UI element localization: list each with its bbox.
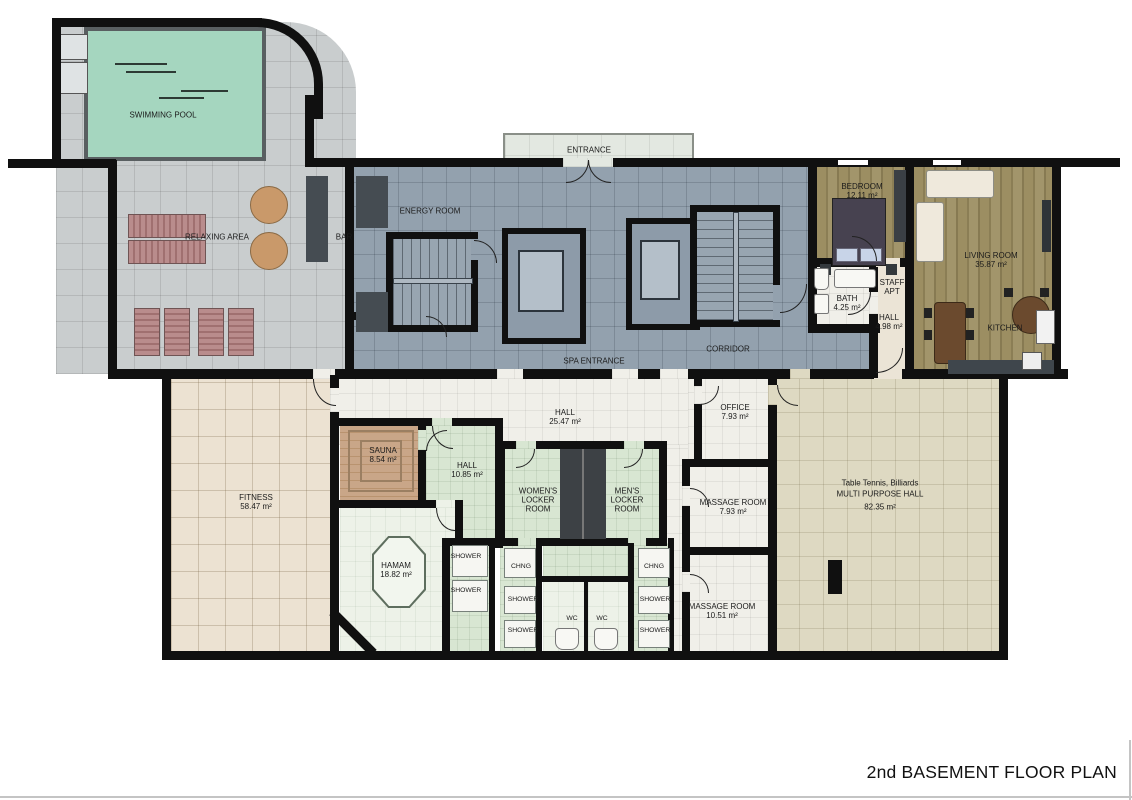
label-bar: BAR	[336, 233, 352, 242]
wall	[52, 18, 262, 27]
label-small-hall: HALL 10.85 m²	[451, 461, 483, 479]
label-living-room-name: LIVING ROOM	[964, 251, 1017, 260]
stair-core-wall	[773, 205, 780, 285]
label-fitness: FITNESS 58.47 m²	[239, 493, 273, 511]
wall	[999, 375, 1008, 660]
door-opening	[418, 430, 426, 450]
shower-tray	[452, 580, 488, 612]
label-bedroom-name: BEDROOM	[841, 182, 882, 191]
label-massage-room-1: MASSAGE ROOM 7.93 m²	[700, 498, 767, 516]
label-massage1-area: 7.93 m²	[700, 507, 767, 516]
label-spa-hall-name: HALL	[549, 408, 581, 417]
label-office: OFFICE 7.93 m²	[720, 403, 749, 421]
stair-core-wall	[690, 205, 780, 212]
swimming-pool	[84, 27, 266, 161]
stair-landing	[733, 212, 739, 322]
sheet-edge-bottom	[0, 796, 1132, 798]
label-hamam-area: 18.82 m²	[380, 570, 412, 579]
pool-water-line	[115, 63, 167, 65]
stove	[1022, 352, 1042, 370]
label-womens-locker-line3: ROOM	[519, 505, 557, 514]
toilet	[555, 628, 579, 650]
label-sauna-area: 8.54 m²	[369, 455, 397, 464]
door-opening	[682, 572, 690, 592]
label-spa-entrance: SPA ENTRANCE	[563, 357, 624, 366]
chair	[966, 308, 974, 318]
label-bedroom: BEDROOM 12.11 m²	[841, 182, 882, 200]
window-opening	[933, 160, 961, 165]
wall	[628, 543, 634, 653]
tv-unit	[1042, 200, 1051, 252]
label-womens-locker-line1: WOMEN'S	[519, 487, 557, 496]
label-mens-locker-line1: MEN'S	[611, 487, 644, 496]
door-opening	[497, 369, 523, 379]
sofa	[916, 202, 944, 262]
wall	[1052, 158, 1061, 379]
chair	[966, 330, 974, 340]
sink	[814, 294, 829, 314]
label-mens-locker: MEN'S LOCKER ROOM	[611, 487, 644, 514]
wall	[52, 18, 61, 163]
label-bedroom-area: 12.11 m²	[841, 191, 882, 200]
label-spa-hall: HALL 25.47 m²	[549, 408, 581, 426]
pool-steps	[60, 34, 88, 60]
pool-steps	[60, 62, 88, 94]
wall	[659, 441, 667, 546]
window-opening	[838, 160, 868, 165]
label-sauna: SAUNA 8.54 m²	[369, 446, 397, 464]
label-staff-hall: HALL 4.98 m²	[875, 313, 902, 331]
wall	[455, 500, 463, 546]
wall	[495, 418, 503, 548]
label-bath-area: 4.25 m²	[833, 303, 860, 312]
lounge-chair	[128, 240, 206, 264]
label-chng: CHNG	[511, 563, 531, 571]
label-bath-name: BATH	[833, 294, 860, 303]
stair-core-wall	[386, 232, 478, 239]
label-corridor: CORRIDOR	[706, 345, 750, 354]
door-opening	[790, 369, 810, 379]
wall	[305, 95, 314, 165]
pool-water-line	[159, 97, 204, 99]
elevator-car	[640, 240, 680, 300]
door-opening	[768, 385, 777, 405]
wall	[1052, 158, 1120, 167]
pool-water-line	[126, 71, 176, 73]
label-fitness-area: 58.47 m²	[239, 502, 273, 511]
label-hamam: HAMAM 18.82 m²	[380, 561, 412, 579]
label-staff-apt-line1: STAFF	[880, 278, 905, 287]
label-staff-hall-area: 4.98 m²	[875, 322, 902, 331]
wall	[108, 160, 117, 378]
label-relaxing-area: RELAXING AREA	[185, 233, 249, 242]
label-staff-apt-line2: APT	[880, 287, 905, 296]
label-sauna-name: SAUNA	[369, 446, 397, 455]
label-energy-room: ENERGY ROOM	[400, 207, 461, 216]
door-opening	[432, 418, 452, 426]
label-office-area: 7.93 m²	[720, 412, 749, 421]
stair-landing	[393, 278, 473, 284]
label-small-hall-name: HALL	[451, 461, 483, 470]
label-massage1-name: MASSAGE ROOM	[700, 498, 767, 507]
stair-core-wall	[471, 260, 478, 332]
nightstand	[886, 264, 897, 275]
label-wc: WC	[596, 615, 607, 623]
label-shower: SHOWER	[451, 553, 482, 561]
label-small-hall-area: 10.85 m²	[451, 470, 483, 479]
label-multi-hall-line3: 82.35 m²	[837, 503, 924, 512]
dining-table	[934, 302, 966, 364]
label-massage2-area: 10.51 m²	[689, 611, 756, 620]
label-massage-room-2: MASSAGE ROOM 10.51 m²	[689, 602, 756, 620]
sofa	[926, 170, 994, 198]
wall	[338, 418, 428, 426]
label-living-room: LIVING ROOM 35.87 m²	[964, 251, 1017, 269]
label-shower: SHOWER	[508, 596, 539, 604]
between-lockers-hall-floor	[543, 543, 631, 579]
chair	[1004, 288, 1013, 297]
fitness-floor	[171, 379, 332, 653]
bar-counter	[306, 176, 328, 262]
label-wc: WC	[566, 615, 577, 623]
door-opening	[518, 538, 536, 546]
wall	[768, 375, 777, 660]
plan-title: 2nd BASEMENT FLOOR PLAN	[867, 762, 1117, 783]
door-opening	[624, 441, 644, 449]
label-shower: SHOWER	[451, 587, 482, 595]
label-swimming-pool: SWIMMING POOL	[129, 111, 196, 120]
chair	[1040, 288, 1049, 297]
bathtub	[834, 269, 876, 288]
shower-tray	[452, 545, 488, 577]
label-hamam-name: HAMAM	[380, 561, 412, 570]
pillar	[828, 560, 842, 594]
toilet	[814, 268, 829, 290]
elevator-car	[518, 250, 564, 312]
pool-water-line	[181, 90, 228, 92]
label-staff-apt: STAFF APT	[880, 278, 905, 296]
lounge-chair	[134, 308, 160, 356]
wardrobe	[894, 170, 906, 242]
lounge-chair	[198, 308, 224, 356]
door-opening	[682, 486, 690, 506]
door-opening	[612, 369, 638, 379]
sheet-edge-right	[1129, 740, 1131, 800]
label-multi-purpose-hall: Table Tennis, Billiards MULTI PURPOSE HA…	[837, 479, 924, 512]
wall	[8, 159, 116, 168]
label-staff-hall-name: HALL	[875, 313, 902, 322]
wall	[905, 158, 914, 379]
lockers-divider	[582, 449, 584, 539]
label-spa-hall-area: 25.47 m²	[549, 417, 581, 426]
lounge-chair	[164, 308, 190, 356]
wall	[688, 459, 774, 467]
label-womens-locker: WOMEN'S LOCKER ROOM	[519, 487, 557, 514]
wall	[162, 370, 171, 660]
label-entrance: ENTRANCE	[567, 146, 611, 155]
label-mens-locker-line3: ROOM	[611, 505, 644, 514]
table-round	[250, 232, 288, 270]
label-office-name: OFFICE	[720, 403, 749, 412]
toilet	[594, 628, 618, 650]
fridge	[1036, 310, 1055, 344]
label-shower: SHOWER	[640, 627, 671, 635]
label-massage2-name: MASSAGE ROOM	[689, 602, 756, 611]
wall	[108, 369, 1068, 379]
label-mens-locker-line2: LOCKER	[611, 496, 644, 505]
floor-plan: SWIMMING POOL RELAXING AREA BAR ENERGY R…	[0, 0, 1132, 800]
chair	[924, 330, 932, 340]
wall	[584, 580, 588, 653]
label-womens-locker-line2: LOCKER	[519, 496, 557, 505]
label-bath: BATH 4.25 m²	[833, 294, 860, 312]
label-kitchen: KITCHEN	[987, 324, 1022, 333]
label-multi-hall-line1: Table Tennis, Billiards	[837, 479, 924, 488]
service-niche	[356, 292, 388, 332]
wall	[682, 547, 774, 555]
label-shower: SHOWER	[508, 627, 539, 635]
wall	[442, 538, 450, 655]
wall	[542, 576, 634, 582]
wall	[345, 158, 354, 379]
label-living-room-area: 35.87 m²	[964, 260, 1017, 269]
chair	[924, 308, 932, 318]
label-shower: SHOWER	[640, 596, 671, 604]
service-niche	[356, 176, 388, 228]
label-chng: CHNG	[644, 563, 664, 571]
lounge-chair	[228, 308, 254, 356]
door-opening	[436, 500, 456, 508]
stair-core-wall	[690, 205, 697, 327]
multi-hall-floor	[775, 379, 1001, 653]
door-opening	[516, 441, 536, 449]
label-fitness-name: FITNESS	[239, 493, 273, 502]
door-opening	[660, 369, 688, 379]
wall	[489, 538, 495, 655]
table-round	[250, 186, 288, 224]
label-multi-hall-line2: MULTI PURPOSE HALL	[837, 490, 924, 499]
